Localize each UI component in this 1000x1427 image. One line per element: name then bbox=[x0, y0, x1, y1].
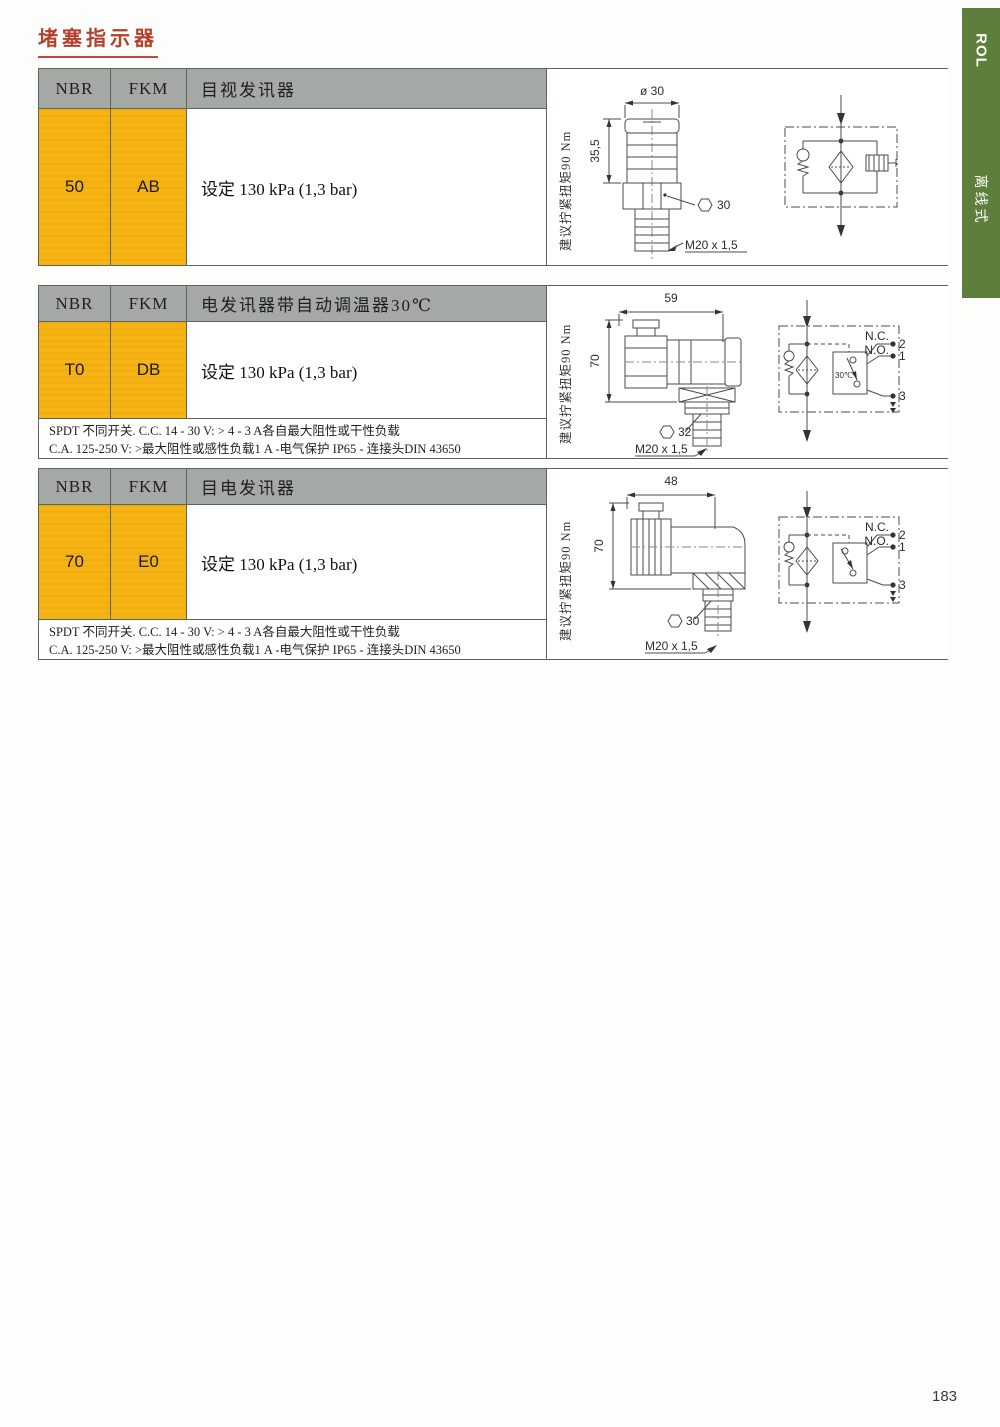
side-tab-code: ROL bbox=[973, 33, 990, 68]
fkm-code-cell: AB bbox=[111, 109, 187, 265]
svg-text:N.C.: N.C. bbox=[865, 329, 889, 343]
svg-text:3: 3 bbox=[899, 578, 906, 592]
drawing-panel: 建议拧紧扭矩90 Nm ø 30 bbox=[547, 69, 949, 265]
nbr-code-cell: T0 bbox=[39, 322, 111, 418]
setting-description: 设定 130 kPa (1,3 bar) bbox=[187, 109, 547, 265]
fkm-code-cell: E0 bbox=[111, 505, 187, 619]
svg-text:3: 3 bbox=[899, 389, 906, 403]
dimension-hex: 32 bbox=[660, 414, 701, 439]
spec-line-1: SPDT 不同开关. C.C. 14 - 30 V: > 4 - 3 A各自最大… bbox=[49, 422, 536, 440]
hydraulic-schematic: 30℃ N.C. 2 N.O. 1 bbox=[779, 300, 906, 442]
block-title: 电发讯器带自动调温器30℃ bbox=[187, 286, 547, 322]
setting-description: 设定 130 kPa (1,3 bar) bbox=[187, 505, 547, 619]
svg-text:1: 1 bbox=[899, 540, 906, 554]
check-valve-symbol bbox=[784, 344, 807, 394]
svg-text:48: 48 bbox=[664, 474, 678, 488]
dimension-thread: M20 x 1,5 bbox=[667, 238, 747, 252]
svg-text:ø 30: ø 30 bbox=[640, 84, 664, 98]
svg-text:M20 x 1,5: M20 x 1,5 bbox=[685, 238, 738, 252]
svg-text:1: 1 bbox=[899, 349, 906, 363]
dimension-width-top: 59 bbox=[619, 291, 723, 342]
spec-line-2: C.A. 125-250 V: >最大阻性或感性负载1 A -电气保护 IP65… bbox=[49, 641, 536, 659]
svg-text:N.C.: N.C. bbox=[865, 520, 889, 534]
terminal-labels: N.C. 2 N.O. 1 3 bbox=[864, 329, 906, 413]
hex-across-flats-icon bbox=[668, 615, 682, 627]
device-line-art bbox=[623, 109, 681, 259]
electrical-spec-note: SPDT 不同开关. C.C. 14 - 30 V: > 4 - 3 A各自最大… bbox=[39, 619, 547, 659]
svg-text:N.O.: N.O. bbox=[864, 343, 889, 357]
side-tab: ROL 离线式 bbox=[962, 8, 1000, 298]
col-header-fkm: FKM bbox=[111, 286, 187, 322]
technical-drawing-visual-indicator: ø 30 35,5 30 bbox=[547, 69, 949, 265]
technical-drawing-electric-indicator: 59 70 32 M20 x 1,5 bbox=[547, 286, 949, 458]
indicator-block-visual: NBR FKM 目视发讯器 建议拧紧扭矩90 Nm bbox=[38, 68, 948, 266]
nbr-code-cell: 70 bbox=[39, 505, 111, 619]
side-tab-category: 离线式 bbox=[971, 175, 991, 226]
svg-text:N.O.: N.O. bbox=[864, 534, 889, 548]
dimension-thread: M20 x 1,5 bbox=[645, 639, 717, 653]
drawing-panel: 建议拧紧扭矩90 Nm bbox=[547, 469, 949, 659]
terminal-labels: N.C. 2 N.O. 1 3 bbox=[864, 520, 906, 602]
check-valve-symbol bbox=[784, 535, 807, 585]
spec-line-2: C.A. 125-250 V: >最大阻性或感性负载1 A -电气保护 IP65… bbox=[49, 440, 536, 458]
hex-across-flats-icon bbox=[698, 199, 712, 211]
col-header-nbr: NBR bbox=[39, 69, 111, 109]
col-header-fkm: FKM bbox=[111, 69, 187, 109]
svg-text:70: 70 bbox=[588, 354, 602, 368]
col-header-fkm: FKM bbox=[111, 469, 187, 505]
svg-text:M20 x 1,5: M20 x 1,5 bbox=[635, 442, 688, 456]
hydraulic-schematic: N.C. 2 N.O. 1 3 bbox=[779, 491, 906, 633]
svg-text:M20 x 1,5: M20 x 1,5 bbox=[645, 639, 698, 653]
thermostat-switch-symbol: 30℃ bbox=[807, 344, 867, 394]
dimension-height-left: 70 bbox=[588, 320, 677, 402]
nbr-code-cell: 50 bbox=[39, 109, 111, 265]
block-title: 目电发讯器 bbox=[187, 469, 547, 505]
technical-drawing-visual-electric-indicator: 48 70 30 M20 x 1,5 bbox=[547, 469, 949, 659]
page-title: 堵塞指示器 bbox=[38, 22, 158, 58]
dimension-thread: M20 x 1,5 bbox=[635, 442, 707, 456]
dimension-height-left: 35,5 bbox=[588, 119, 621, 183]
svg-text:59: 59 bbox=[664, 291, 678, 305]
page-number: 183 bbox=[932, 1388, 957, 1405]
electrical-spec-note: SPDT 不同开关. C.C. 14 - 30 V: > 4 - 3 A各自最大… bbox=[39, 418, 547, 458]
indicator-block-visual-electric: NBR FKM 目电发讯器 建议拧紧扭矩90 Nm bbox=[38, 468, 948, 660]
svg-text:35,5: 35,5 bbox=[588, 139, 602, 163]
visual-indicator-symbol bbox=[841, 141, 896, 193]
svg-text:70: 70 bbox=[592, 539, 606, 553]
hydraulic-schematic bbox=[785, 95, 897, 237]
check-valve-symbol bbox=[797, 141, 841, 193]
setting-description: 设定 130 kPa (1,3 bar) bbox=[187, 322, 547, 418]
svg-text:30℃: 30℃ bbox=[835, 371, 853, 380]
spec-line-1: SPDT 不同开关. C.C. 14 - 30 V: > 4 - 3 A各自最大… bbox=[49, 623, 536, 641]
dimension-height-left: 70 bbox=[592, 503, 691, 589]
svg-text:30: 30 bbox=[717, 198, 731, 212]
hex-across-flats-icon bbox=[660, 426, 674, 438]
fkm-code-cell: DB bbox=[111, 322, 187, 418]
block-title: 目视发讯器 bbox=[187, 69, 547, 109]
col-header-nbr: NBR bbox=[39, 469, 111, 505]
drawing-panel: 建议拧紧扭矩90 Nm bbox=[547, 286, 949, 458]
indicator-block-electric-thermostat: NBR FKM 电发讯器带自动调温器30℃ 建议拧紧扭矩90 Nm bbox=[38, 285, 948, 459]
col-header-nbr: NBR bbox=[39, 286, 111, 322]
